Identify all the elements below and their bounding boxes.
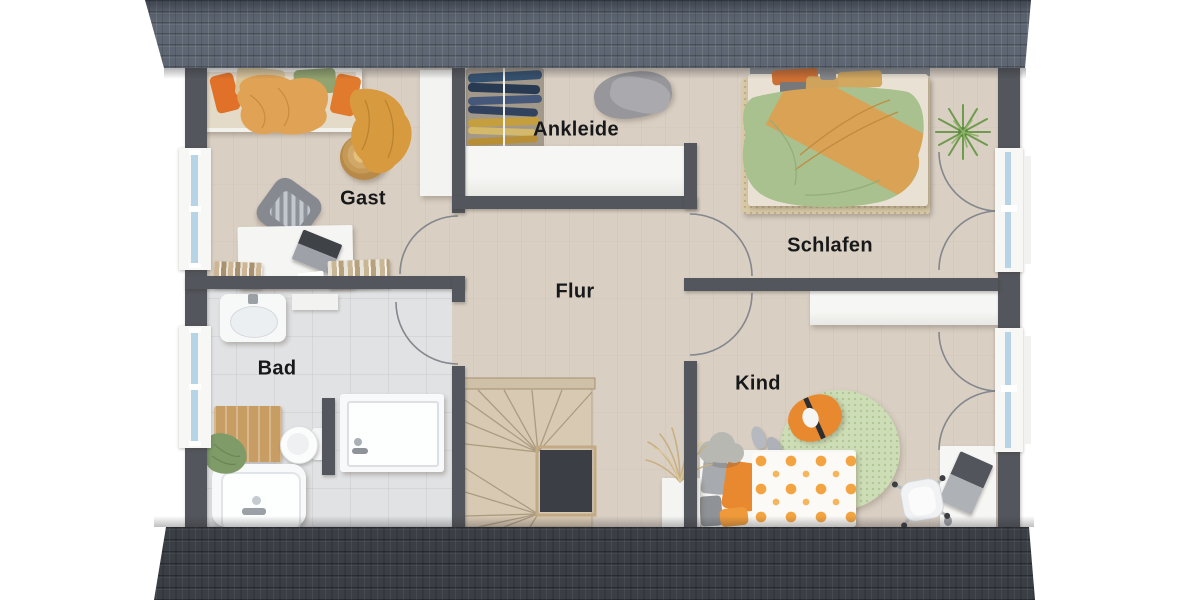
wall-kind-west: [684, 361, 697, 527]
room-label-flur: Flur: [556, 281, 595, 304]
room-label-gast: Gast: [340, 188, 386, 211]
wall-gast-east: [452, 68, 465, 213]
wall-bad-east-lower: [452, 366, 465, 527]
schlafen-door-arc: [690, 214, 752, 276]
window-left-1-sill-top: [189, 150, 201, 155]
kind-door-arc: [690, 293, 752, 355]
room-label-ankleide: Ankleide: [533, 119, 619, 142]
roof-bottom: [0, 527, 1200, 600]
wall-ankleide-south: [452, 196, 697, 209]
gast-door-arc: [400, 216, 458, 274]
wall-exterior-left: [185, 68, 207, 527]
window-left-2-sill-top: [189, 328, 201, 333]
floorplan-overlay: [0, 0, 1200, 600]
staircase: [462, 378, 595, 527]
roof-bottom-shadow: [154, 516, 1034, 527]
stair-handrail: [462, 378, 595, 389]
schlafen-french-door-arc-upper: [939, 152, 998, 211]
gast-orange-duvet: [237, 75, 328, 135]
room-label-schlafen: Schlafen: [787, 235, 873, 258]
wall-exterior-right: [998, 68, 1020, 527]
window-left-1: [179, 148, 211, 270]
window-left-2-sill-bottom: [189, 441, 201, 446]
window-left-1-sill-bottom: [189, 263, 201, 268]
bad-door-arc: [396, 302, 458, 364]
schlafen-french-door-arc-lower: [939, 211, 998, 270]
roof-top-shadow: [164, 68, 1026, 79]
wall-ankleide-east-cap: [684, 143, 697, 209]
schlafen-french-door: [995, 148, 1023, 272]
wall-gast-south: [185, 276, 465, 289]
window-left-1-handle: [189, 206, 201, 212]
wall-bad-east-upper: [452, 276, 465, 302]
kind-french-door-handle: [1001, 385, 1017, 392]
floorplan-stage: Gast Ankleide Schlafen Flur Bad Kind: [0, 0, 1200, 600]
kind-french-door-arc-upper: [939, 332, 998, 391]
room-label-bad: Bad: [258, 358, 297, 381]
schlafen-plant: [936, 105, 990, 159]
wall-schlafen-south: [684, 278, 998, 291]
room-label-kind: Kind: [735, 373, 781, 396]
roof-top: [0, 0, 1200, 68]
window-left-2: [179, 326, 211, 448]
schlafen-duvet: [743, 66, 935, 207]
kind-french-door-arc-lower: [939, 391, 998, 450]
wall-bad-stub: [322, 398, 335, 475]
stairwell-void: [540, 450, 592, 512]
window-left-2-handle: [189, 384, 201, 390]
kind-french-door: [995, 328, 1023, 452]
schlafen-french-door-sill: [1024, 156, 1031, 264]
kind-cloud-table: [699, 432, 744, 468]
kind-french-door-sill: [1024, 336, 1031, 444]
schlafen-french-door-handle: [1001, 205, 1017, 212]
gast-throw-blanket: [350, 89, 412, 173]
